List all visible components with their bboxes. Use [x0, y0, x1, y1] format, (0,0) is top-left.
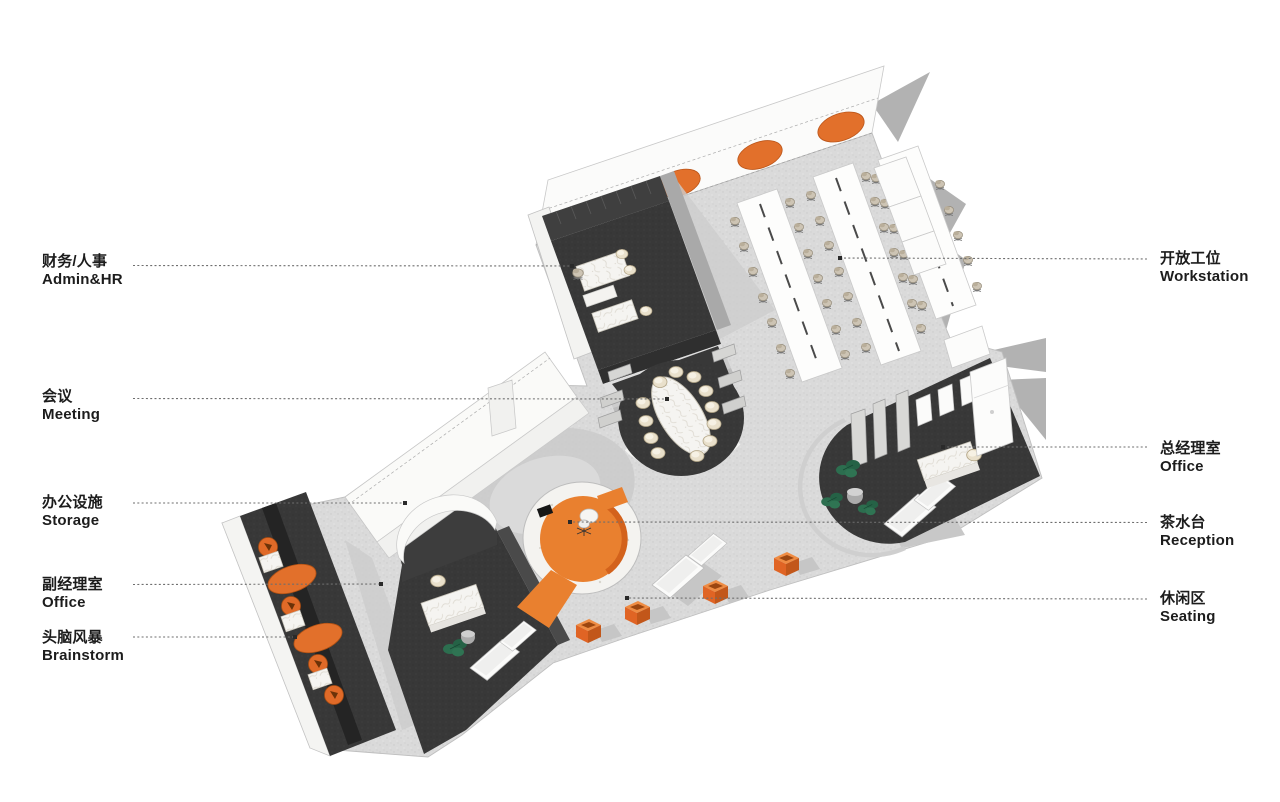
- label-gm-office-en: Office: [1160, 458, 1221, 476]
- label-gm-office-zh: 总经理室: [1160, 440, 1221, 458]
- label-admin-hr-en: Admin&HR: [42, 271, 123, 289]
- label-vice-office-zh: 副经理室: [42, 576, 103, 594]
- label-admin-hr-zh: 财务/人事: [42, 253, 123, 271]
- label-seating: 休闲区 Seating: [1160, 590, 1216, 626]
- floor-plan-page: 财务/人事 Admin&HR 会议 Meeting 办公设施 Storage 副…: [0, 0, 1280, 802]
- label-storage: 办公设施 Storage: [42, 494, 103, 530]
- label-vice-office: 副经理室 Office: [42, 576, 103, 612]
- label-admin-hr: 财务/人事 Admin&HR: [42, 253, 123, 289]
- label-workstation: 开放工位 Workstation: [1160, 250, 1249, 286]
- label-meeting: 会议 Meeting: [42, 388, 100, 424]
- label-gm-office: 总经理室 Office: [1160, 440, 1221, 476]
- label-workstation-en: Workstation: [1160, 268, 1249, 286]
- label-brainstorm: 头脑风暴 Brainstorm: [42, 629, 124, 665]
- floorplan-illustration: [0, 0, 1280, 802]
- label-storage-en: Storage: [42, 512, 103, 530]
- label-meeting-en: Meeting: [42, 406, 100, 424]
- label-workstation-zh: 开放工位: [1160, 250, 1249, 268]
- label-reception-zh: 茶水台: [1160, 514, 1234, 532]
- label-reception: 茶水台 Reception: [1160, 514, 1234, 550]
- label-seating-en: Seating: [1160, 608, 1216, 626]
- label-brainstorm-zh: 头脑风暴: [42, 629, 124, 647]
- label-brainstorm-en: Brainstorm: [42, 647, 124, 665]
- label-reception-en: Reception: [1160, 532, 1234, 550]
- label-seating-zh: 休闲区: [1160, 590, 1216, 608]
- label-vice-office-en: Office: [42, 594, 103, 612]
- label-meeting-zh: 会议: [42, 388, 100, 406]
- label-storage-zh: 办公设施: [42, 494, 103, 512]
